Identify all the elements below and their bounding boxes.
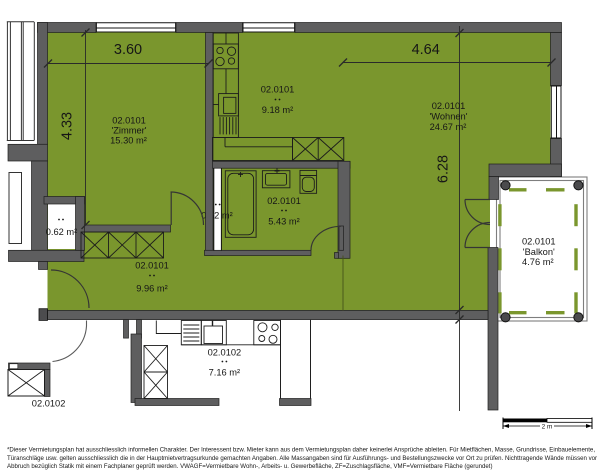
- svg-text:2 m: 2 m: [542, 424, 553, 431]
- svg-text:02.0101: 02.0101: [432, 101, 466, 111]
- svg-text:6.28: 6.28: [436, 155, 452, 183]
- svg-text:Türanschläge usw. gelten aussc: Türanschläge usw. gelten ausschliesslich…: [7, 455, 597, 462]
- svg-text:Abbruch bezüglich Statik mit e: Abbruch bezüglich Statik mit einem Fachp…: [7, 463, 493, 470]
- svg-text:24.67 m²: 24.67 m²: [430, 122, 467, 132]
- svg-text:4.33: 4.33: [60, 112, 76, 140]
- svg-text:9.96 m²: 9.96 m²: [136, 284, 168, 294]
- svg-text:9.18 m²: 9.18 m²: [262, 105, 294, 115]
- svg-text:'Wohnen': 'Wohnen': [429, 112, 467, 122]
- svg-text:*Dieser Vermietungsplan hat au: *Dieser Vermietungsplan hat ausschliessl…: [7, 447, 595, 454]
- svg-text:4.76 m²: 4.76 m²: [522, 257, 554, 267]
- svg-text:02.0101: 02.0101: [261, 85, 295, 95]
- svg-text:'Zimmer': 'Zimmer': [111, 125, 146, 135]
- svg-text:15.30 m²: 15.30 m²: [110, 136, 147, 146]
- svg-text:02.0101: 02.0101: [135, 261, 169, 271]
- svg-text:02.0102: 02.0102: [32, 399, 66, 409]
- svg-text:02.0101: 02.0101: [522, 237, 556, 247]
- svg-text:0.62 m²: 0.62 m²: [46, 227, 78, 237]
- svg-text:02.0101: 02.0101: [267, 196, 301, 206]
- svg-text:'Balkon': 'Balkon': [523, 247, 555, 257]
- svg-text:02.0102: 02.0102: [208, 348, 242, 358]
- svg-text:7.16 m²: 7.16 m²: [209, 367, 241, 377]
- svg-text:3.60: 3.60: [114, 42, 142, 58]
- svg-text:02.0101: 02.0101: [112, 116, 146, 126]
- svg-text:4.64: 4.64: [412, 42, 440, 58]
- svg-text:5.43 m²: 5.43 m²: [268, 217, 300, 227]
